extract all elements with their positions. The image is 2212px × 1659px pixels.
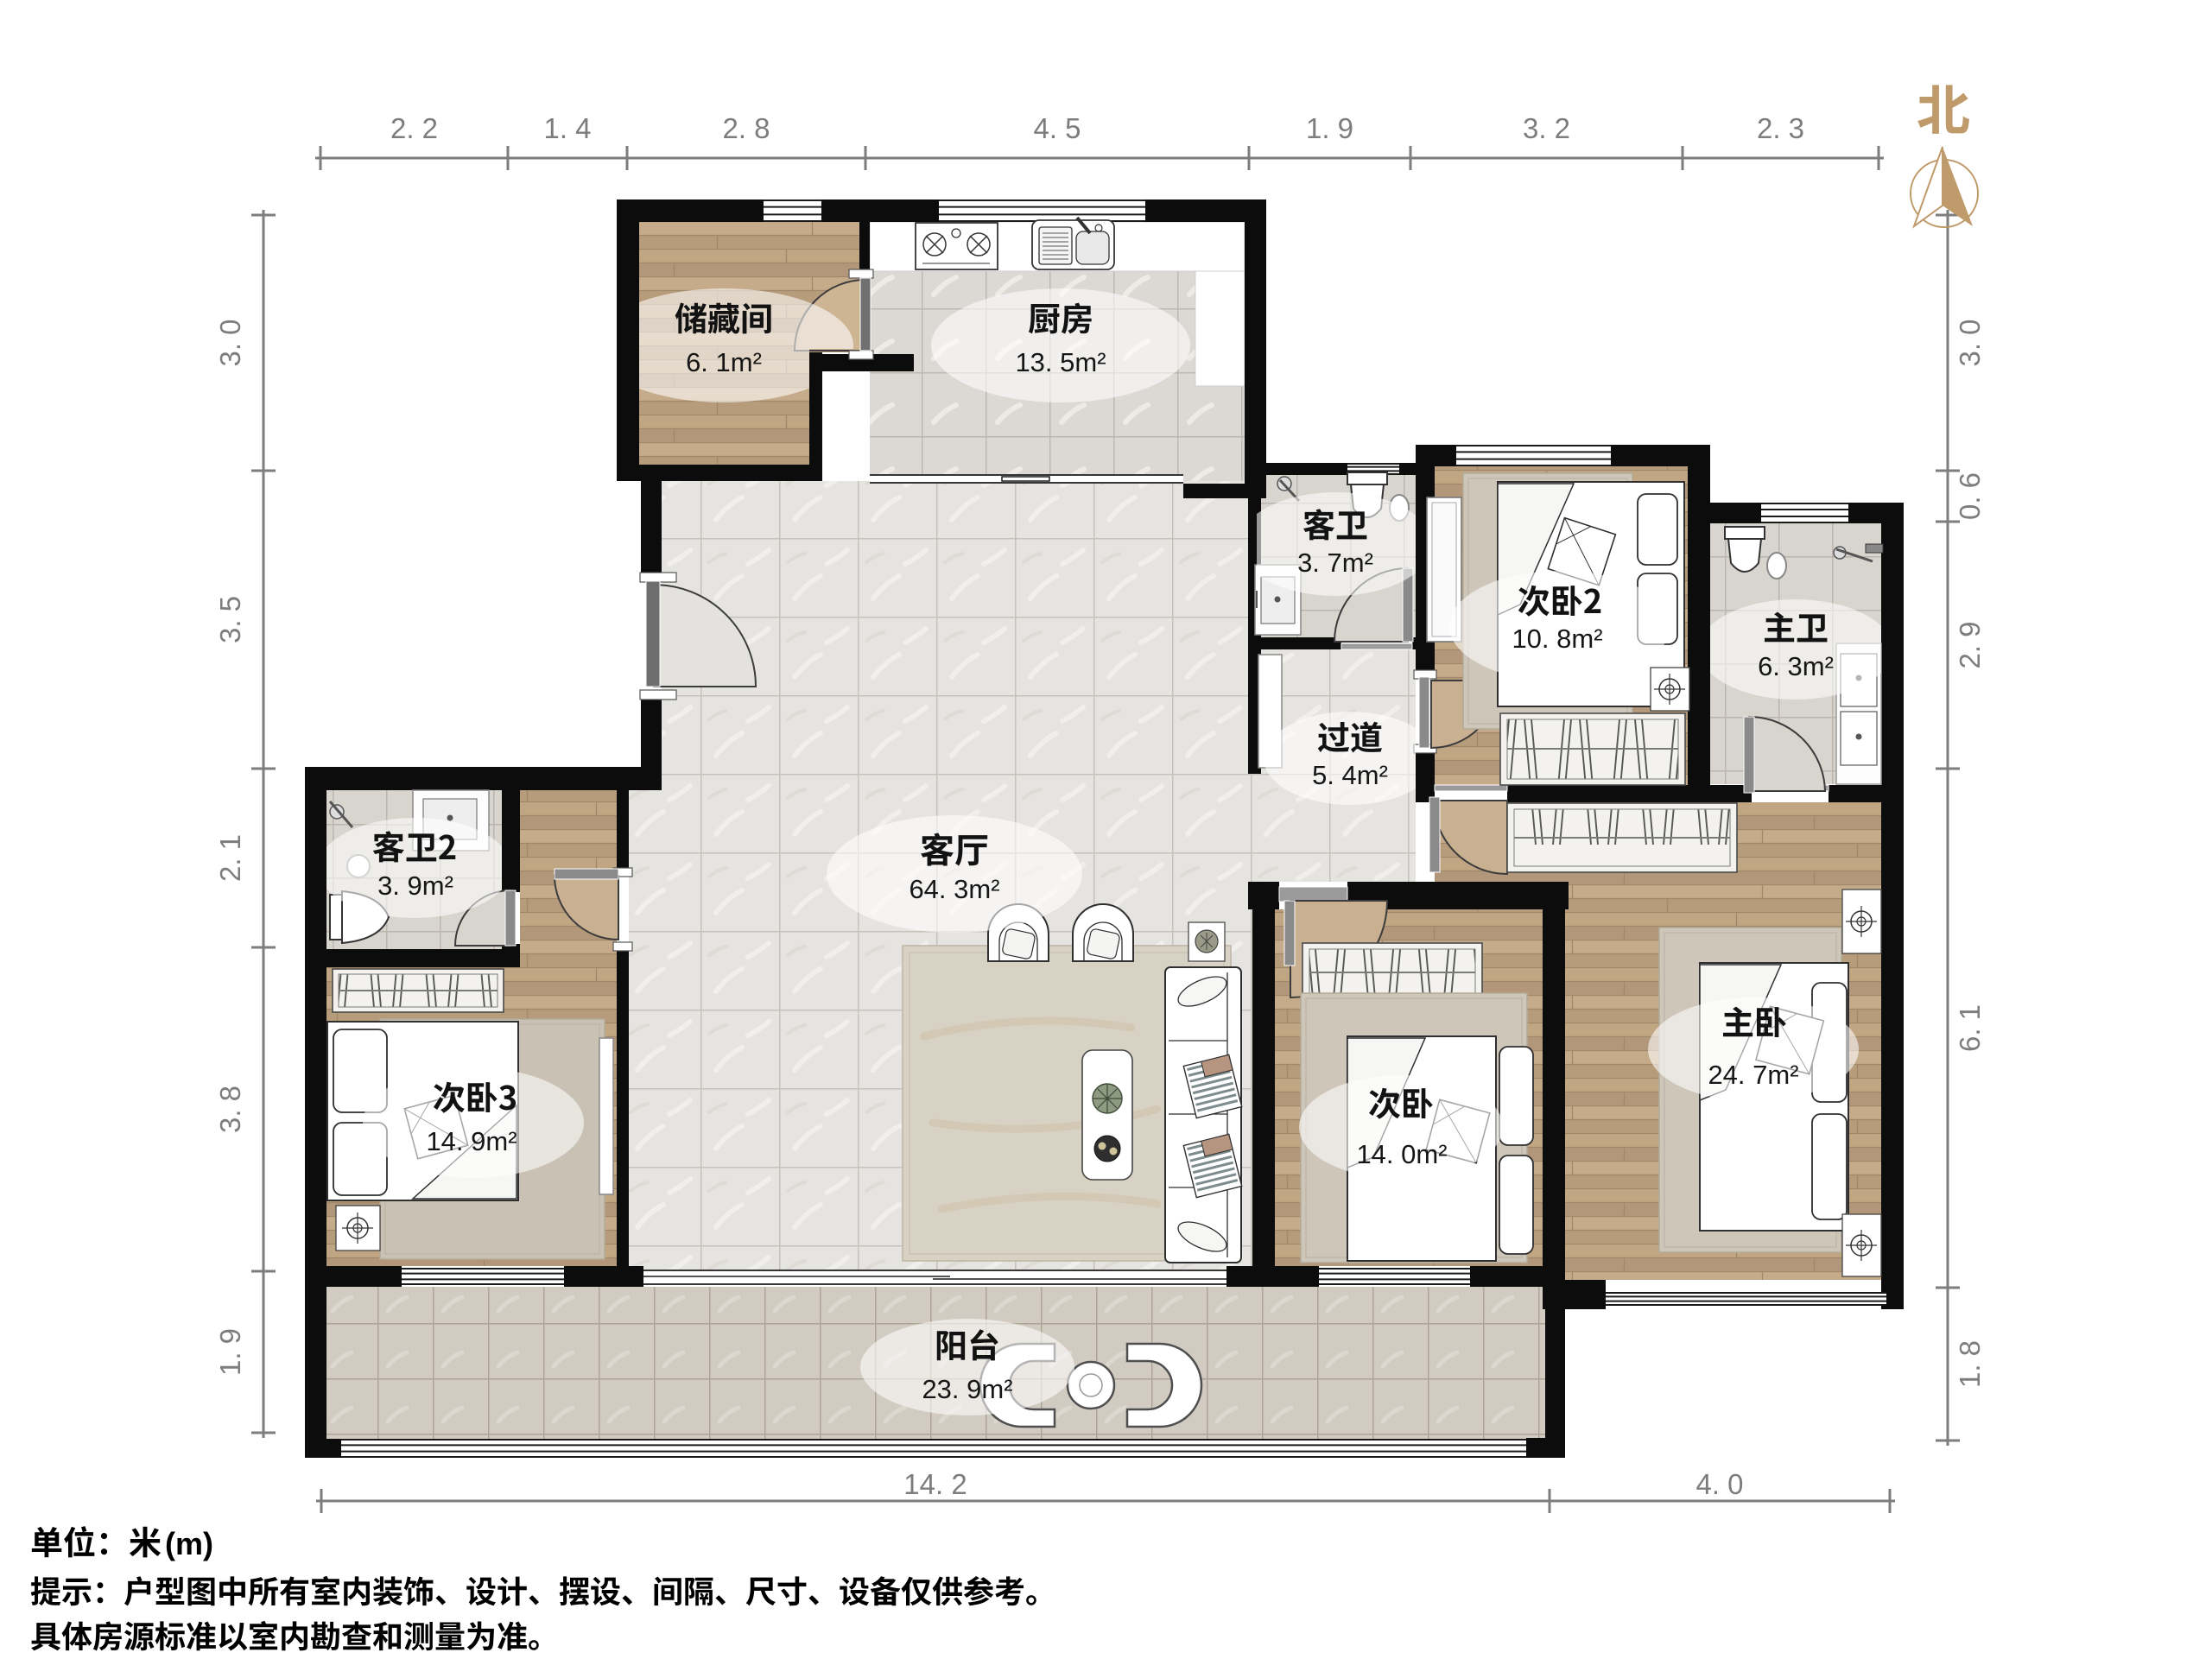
svg-text:13. 5m²: 13. 5m² — [1015, 347, 1106, 377]
svg-text:24. 7m²: 24. 7m² — [1708, 1060, 1798, 1090]
svg-text:3. 2: 3. 2 — [1523, 112, 1570, 144]
svg-text:6. 1: 6. 1 — [1954, 1004, 1986, 1052]
svg-text:3. 0: 3. 0 — [214, 319, 246, 366]
svg-text:6. 3m²: 6. 3m² — [1758, 651, 1834, 681]
svg-text:3. 7m²: 3. 7m² — [1297, 548, 1373, 578]
svg-text:3. 8: 3. 8 — [214, 1086, 246, 1133]
svg-text:14. 0m²: 14. 0m² — [1356, 1139, 1447, 1169]
svg-text:23. 9m²: 23. 9m² — [922, 1374, 1012, 1404]
svg-text:6. 1m²: 6. 1m² — [686, 347, 762, 377]
svg-text:14. 9m²: 14. 9m² — [426, 1126, 517, 1156]
svg-text:0. 6: 0. 6 — [1954, 472, 1986, 520]
svg-text:3. 5: 3. 5 — [214, 596, 246, 643]
svg-text:2. 9: 2. 9 — [1954, 621, 1986, 668]
svg-text:(m): (m) — [165, 1526, 213, 1561]
svg-text:2. 1: 2. 1 — [214, 834, 246, 882]
svg-text:64. 3m²: 64. 3m² — [909, 874, 999, 904]
svg-text:1. 9: 1. 9 — [1306, 112, 1353, 144]
svg-text:14. 2: 14. 2 — [903, 1468, 967, 1500]
svg-text:1. 4: 1. 4 — [543, 112, 591, 144]
svg-text:5. 4m²: 5. 4m² — [1312, 760, 1388, 790]
svg-text:2. 8: 2. 8 — [722, 112, 770, 144]
svg-text:2. 3: 2. 3 — [1757, 112, 1804, 144]
svg-text:1. 8: 1. 8 — [1954, 1340, 1986, 1388]
svg-text:4. 0: 4. 0 — [1695, 1468, 1743, 1500]
svg-text:4. 5: 4. 5 — [1033, 112, 1081, 144]
svg-text:10. 8m²: 10. 8m² — [1512, 624, 1602, 654]
svg-text:1. 9: 1. 9 — [214, 1328, 246, 1376]
svg-text:3. 9m²: 3. 9m² — [377, 871, 453, 901]
svg-text:3. 0: 3. 0 — [1954, 319, 1986, 366]
svg-text:2. 2: 2. 2 — [390, 112, 438, 144]
